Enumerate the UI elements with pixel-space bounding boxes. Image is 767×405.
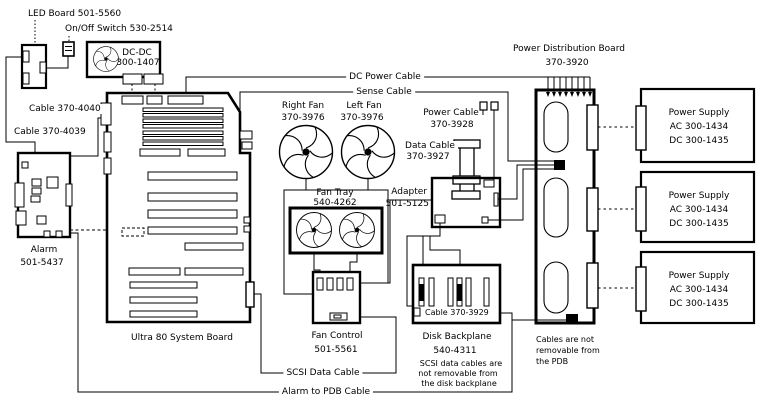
system-board [101,93,254,322]
fan-tray-label: Fan Tray [316,188,353,198]
right-fan-label: Right Fan [282,101,324,111]
ps3-dc-part: DC 300-1435 [669,299,728,309]
pdb-note-line2: removable from [536,346,600,355]
pdb-left-connector [554,160,565,170]
led-board [22,45,46,88]
ps2-label: Power Supply [669,191,730,201]
power-cable-part-number: 370-3928 [430,120,473,130]
alarm-pdb-cable-label: Alarm to PDB Cable [279,387,373,397]
switch-wire [46,56,68,68]
cable-4039-label: Cable 370-4039 [11,127,89,137]
dcdc-label: DC-DC [122,48,152,58]
data-cable-part-number: 370-3927 [403,152,452,162]
disk-backplane-label: Disk Backplane [422,332,491,342]
power-distribution-board [536,90,598,323]
adapter-part-number: 501-5125 [386,199,429,209]
dc-power-cable-label: DC Power Cable [346,72,424,82]
right-fan-part-number: 370-3976 [281,113,324,123]
pdb-label: Power Distribution Board [513,44,625,54]
system-board-label: Ultra 80 System Board [131,333,233,343]
cable-4040-label: Cable 370-4040 [26,104,104,114]
right-fan [280,126,334,179]
alarm-label: Alarm [31,245,57,255]
onoff-switch [63,42,74,56]
ps2-dc-part: DC 300-1435 [669,219,728,229]
ps1-ac-part: AC 300-1434 [670,122,728,132]
onoff-switch-label: On/Off Switch 530-2514 [65,24,173,34]
ps3-label: Power Supply [669,271,730,281]
ultra80-cabling-diagram: LED Board 501-5560 On/Off Switch 530-251… [0,0,767,405]
pdb-note-line3: the PDB [536,357,568,366]
pdb-bottom-connector [566,314,578,322]
backplane-note-line2: not removable from [418,369,497,378]
alarm-board [15,153,72,237]
dcdc-part-number: 300-1407 [116,58,159,68]
ps1-label: Power Supply [669,108,730,118]
diagram-graphics [0,0,767,405]
alarm-part-number: 501-5437 [20,258,63,268]
ps2-ac-part: AC 300-1434 [670,205,728,215]
fan-control-part-number: 501-5561 [314,345,357,355]
pdb-part-number: 370-3920 [545,58,588,68]
left-fan [342,126,396,179]
adapter-label: Adapter [391,187,427,197]
scsi-data-cable-label: SCSI Data Cable [283,368,362,378]
sense-cable-label: Sense Cable [353,87,415,97]
pdb-note-line1: Cables are not [536,335,594,344]
cable-3929-label: Cable 370-3929 [424,308,490,317]
fan-control-label: Fan Control [312,331,363,341]
ps3-ac-part: AC 300-1434 [670,285,728,295]
data-cable-label: Data Cable [402,141,458,151]
bundle-arrowheads [546,92,592,97]
fan-tray-part-number: 540-4262 [313,198,356,208]
fan-control-board [313,272,360,323]
backplane-note-line3: the disk backplane [421,379,497,388]
power-cable-connectors [480,102,498,110]
left-fan-label: Left Fan [346,101,381,111]
fan-tray [290,208,382,253]
disk-backplane-part-number: 540-4311 [433,346,476,356]
left-fan-part-number: 370-3976 [340,113,383,123]
backplane-note-line1: SCSI data cables are [420,359,502,368]
led-board-label: LED Board 501-5560 [28,9,121,19]
power-cable-label: Power Cable [423,108,479,118]
ps1-dc-part: DC 300-1435 [669,136,728,146]
